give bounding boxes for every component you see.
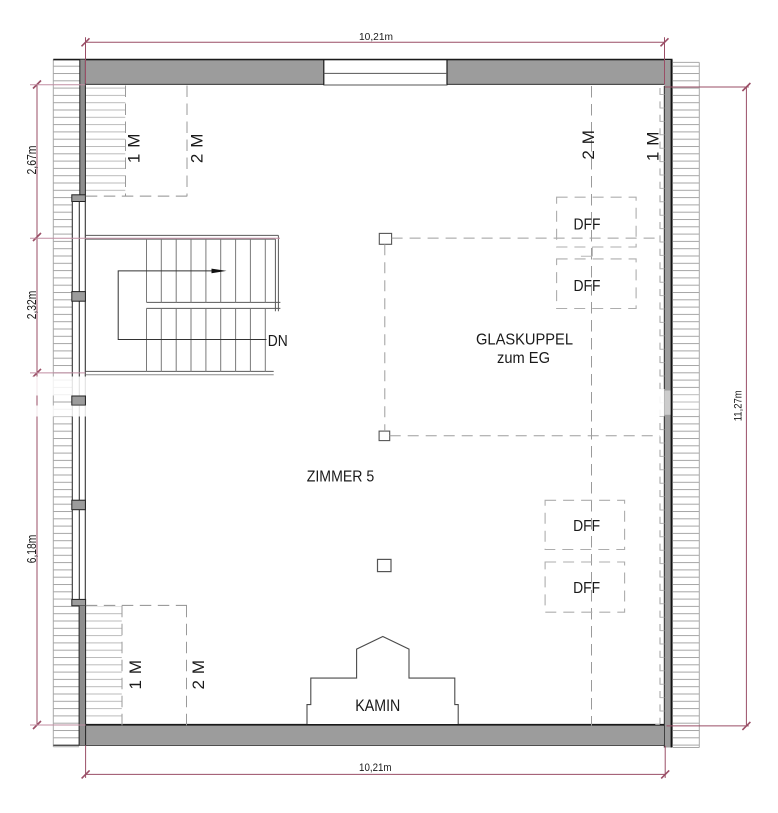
svg-text:DFF: DFF [573,518,600,535]
svg-text:1 M: 1 M [126,659,145,689]
svg-text:DFF: DFF [573,580,600,597]
svg-text:DFF: DFF [574,217,601,234]
svg-text:KAMIN: KAMIN [355,697,400,715]
svg-text:1 M: 1 M [125,133,144,163]
svg-text:2 M: 2 M [189,659,208,689]
svg-text:10,21m: 10,21m [359,762,392,774]
svg-text:1 M: 1 M [643,131,662,161]
svg-text:zum EG: zum EG [497,350,550,367]
svg-text:6,18m: 6,18m [24,535,39,564]
svg-text:11,27m: 11,27m [732,390,744,421]
svg-text:DFF: DFF [574,278,601,295]
svg-text:2 M: 2 M [579,129,598,159]
svg-text:10,21m: 10,21m [359,31,393,43]
svg-text:ZIMMER 5: ZIMMER 5 [307,468,375,485]
svg-text:2,32m: 2,32m [24,291,39,320]
svg-text:GLASKUPPEL: GLASKUPPEL [476,331,573,348]
svg-text:2,67m: 2,67m [24,146,39,175]
svg-text:2 M: 2 M [188,133,207,163]
svg-text:DN: DN [268,333,288,350]
